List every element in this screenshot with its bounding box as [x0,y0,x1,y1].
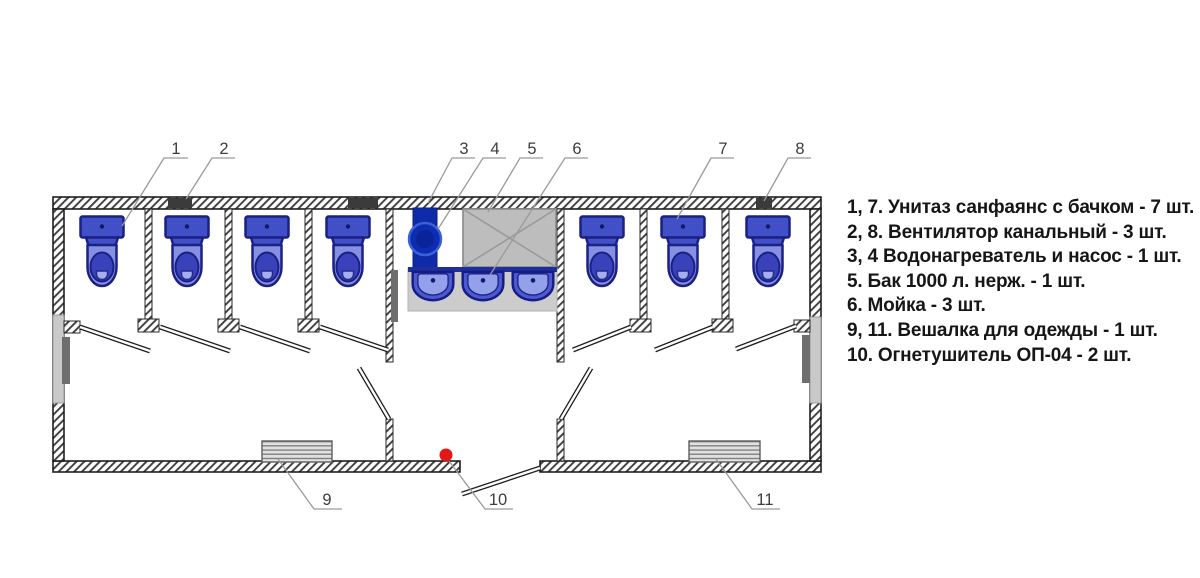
toilet-4 [327,217,370,287]
duct-fan-8 [756,198,772,208]
stall-door [320,327,388,350]
fire-extinguisher [440,449,453,462]
right-wall-window [810,317,821,403]
wall-bottom-right [540,461,821,472]
stall-partition [305,209,312,319]
left-window-leaf [62,337,70,384]
legend-item-coat-racks: 9, 11. Вешалка для одежды - 1 шт. [847,319,1177,344]
central-wall-left-bottom [386,419,393,461]
door-post [794,320,810,332]
callout-11: 11 [756,491,773,509]
callout-6: 6 [572,140,581,158]
sink-2 [463,272,504,300]
legend-item-extinguisher: 10. Огнетушитель ОП-04 - 2 шт. [847,344,1177,369]
door-post [712,319,733,332]
floor-plan-page: 1 2 3 4 5 6 7 8 9 10 11 1, 7. Унитаз сан… [0,0,1200,578]
left-room-door [359,368,389,419]
stall-partition [225,209,232,319]
stall-door [655,327,713,350]
door-post [630,319,651,332]
sink-3 [513,272,554,300]
tank-1000l [463,209,556,267]
coat-rack-11 [689,441,760,462]
toilet-7 [747,217,790,287]
stall-partition [145,209,152,319]
right-room-door [561,368,591,419]
toilet-6 [662,217,705,287]
toilet-2 [166,217,209,287]
legend-item-fans: 2, 8. Вентилятор канальный - 3 шт. [847,221,1177,246]
legend-item-sinks: 6. Мойка - 3 шт. [847,294,1177,319]
utility-room-equipment [391,208,557,322]
pump-core [416,230,434,248]
duct-fan-middle [348,198,378,208]
legend-item-heater-pump: 3, 4 Водонагреватель и насос - 1 шт. [847,245,1177,270]
toilet-3 [246,217,289,287]
door-post [64,321,80,333]
wall-radiator [391,270,398,322]
toilet-5 [581,217,624,287]
callout-2: 2 [219,140,228,158]
toilet-1 [81,217,124,287]
callout-8: 8 [795,140,804,158]
door-post [218,319,239,332]
callout-7: 7 [718,140,727,158]
central-wall-right-bottom [557,419,564,461]
callout-9: 9 [322,491,331,509]
legend-item-toilets: 1, 7. Унитаз санфаянс с бачком - 7 шт. [847,196,1177,221]
wall-bottom-left [53,461,460,472]
stall-door [573,327,631,350]
callout-1: 1 [171,140,180,158]
central-wall-right-top [557,209,564,362]
coat-rack-9 [262,441,332,462]
stall-partition [640,209,647,319]
right-window-leaf [802,335,810,383]
callout-10: 10 [489,491,507,509]
callout-4: 4 [490,140,499,158]
legend-item-tank: 5. Бак 1000 л. нерж. - 1 шт. [847,270,1177,295]
stall-door [736,326,796,349]
door-post [298,319,319,332]
door-post [138,319,159,332]
duct-fan-2 [168,198,192,208]
stall-partition [722,209,729,319]
sink-1 [413,272,454,300]
legend: 1, 7. Унитаз санфаянс с бачком - 7 шт. 2… [847,196,1177,368]
callout-5: 5 [527,140,536,158]
callout-3: 3 [459,140,468,158]
